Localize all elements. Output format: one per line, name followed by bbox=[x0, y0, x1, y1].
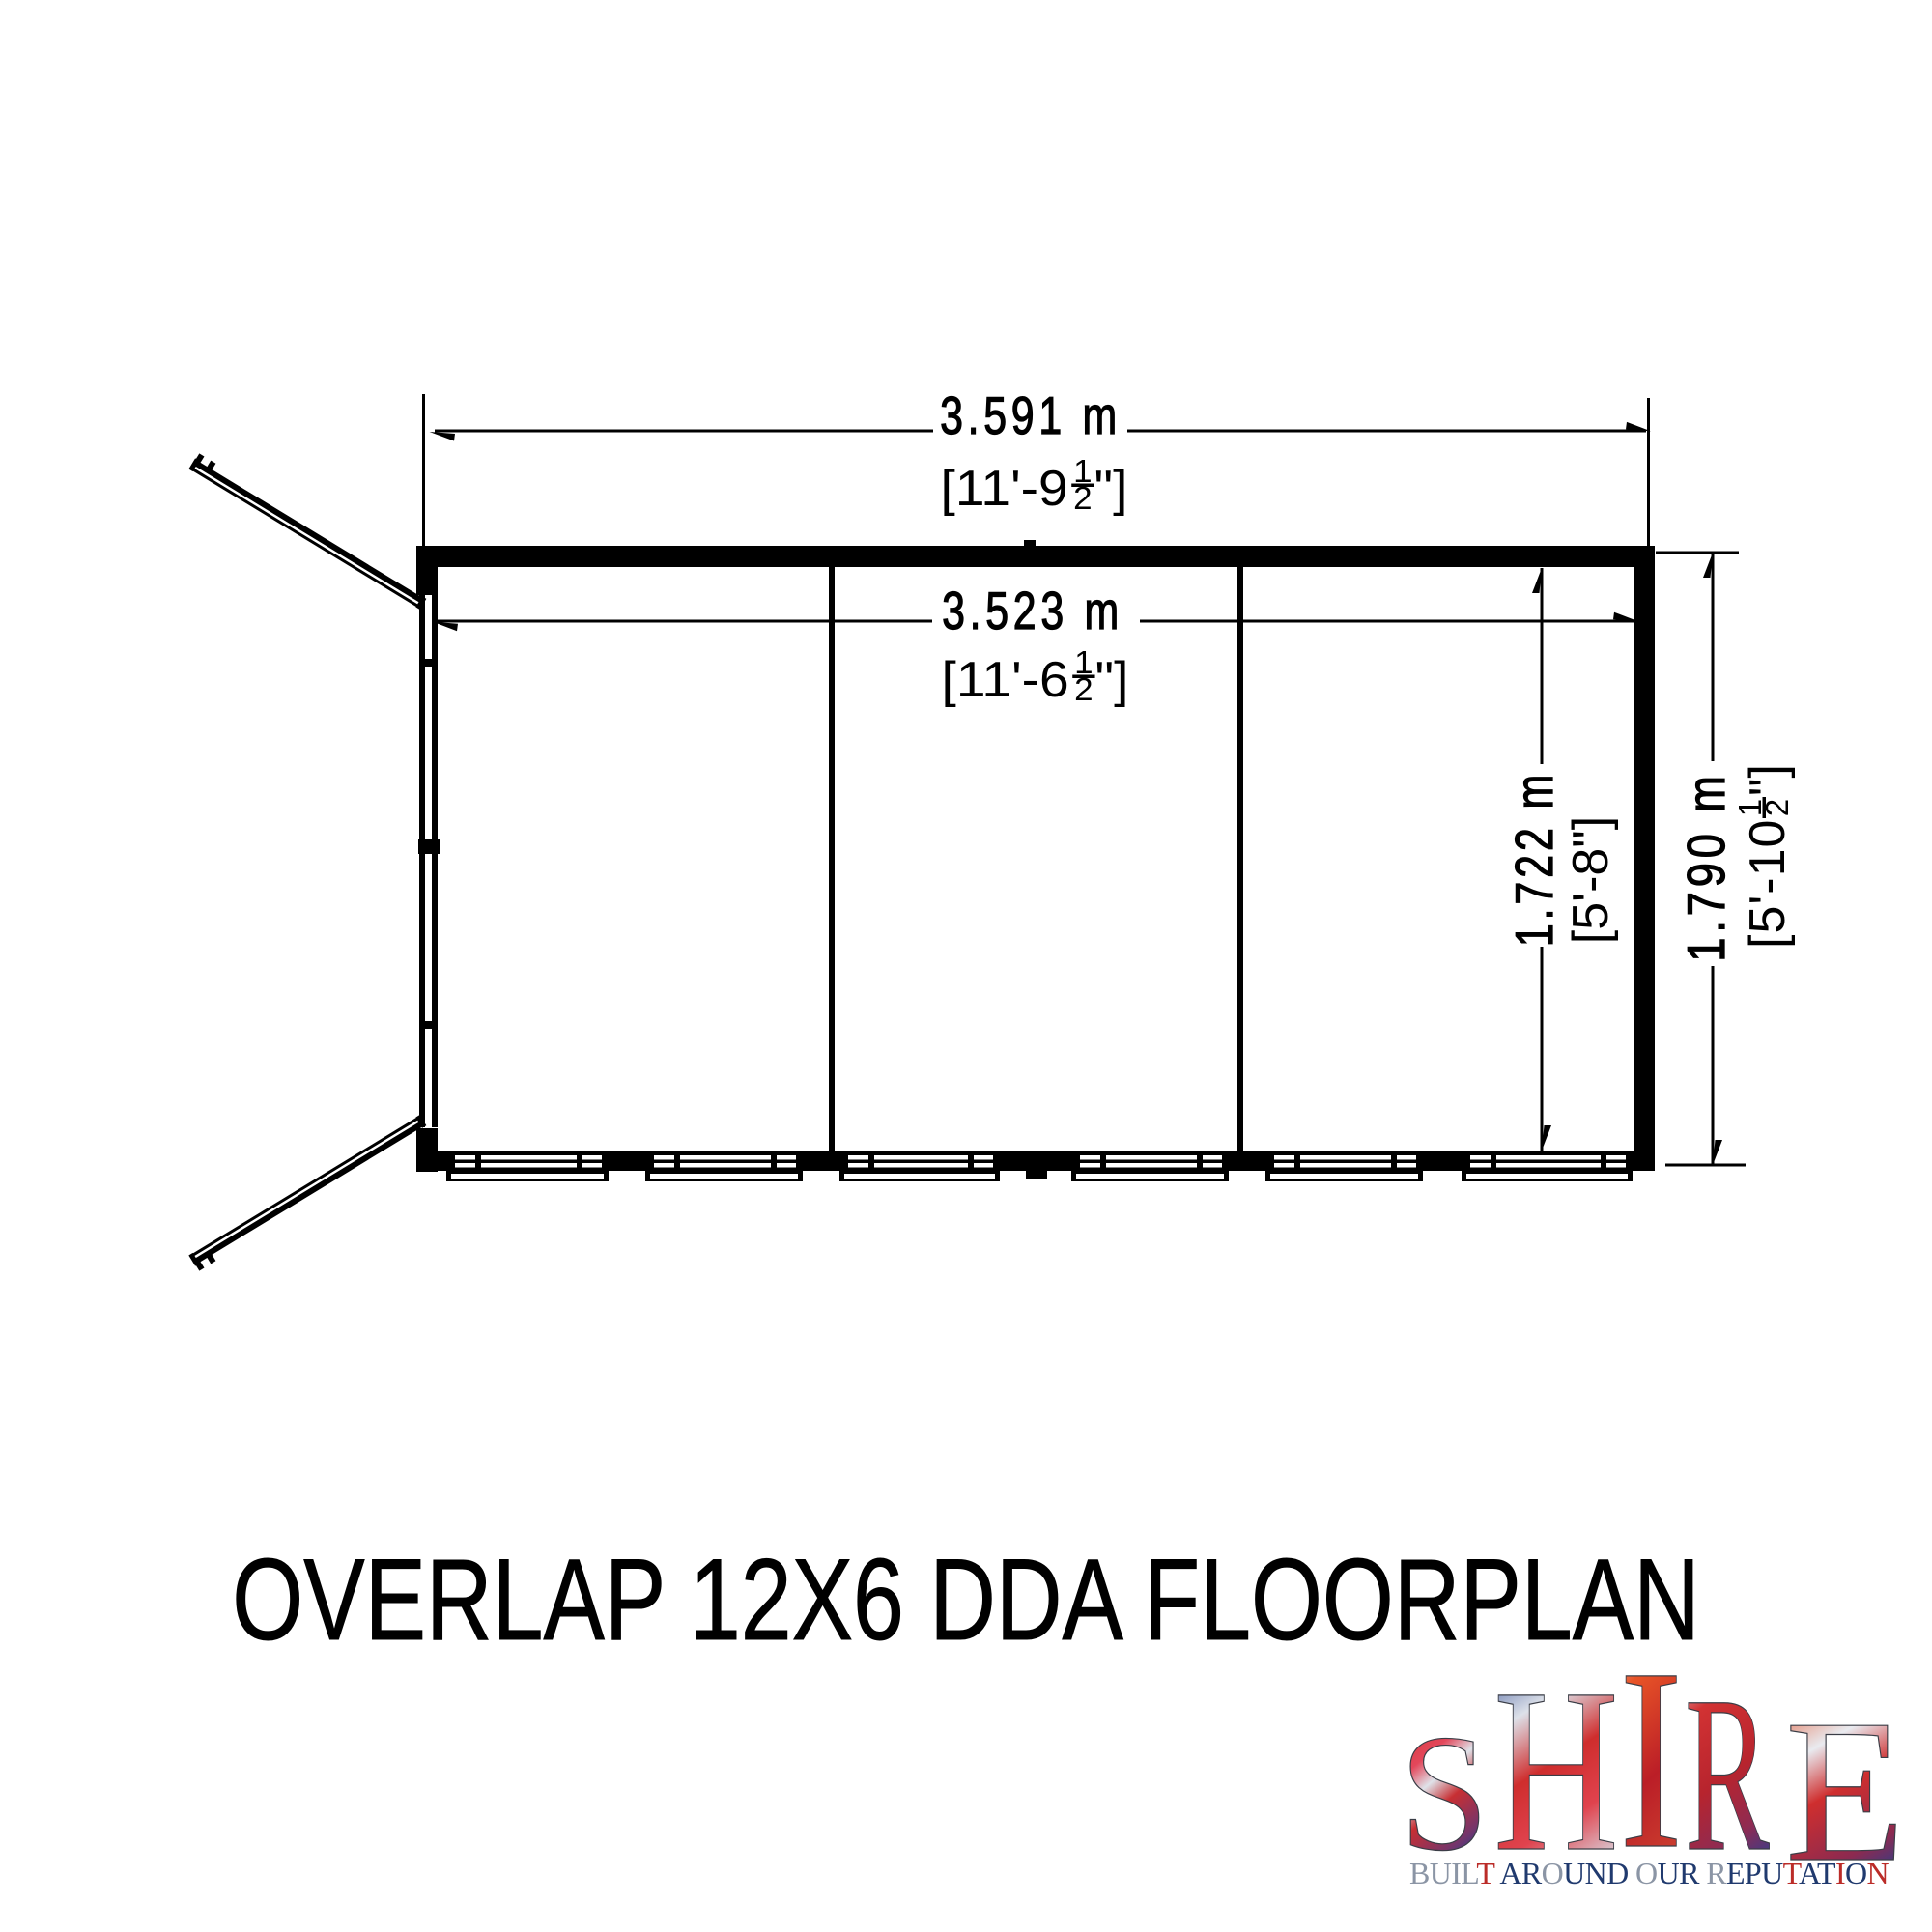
svg-text:1.790 m: 1.790 m bbox=[1676, 771, 1736, 961]
svg-text:[5'-10: [5'-10 bbox=[1740, 819, 1796, 949]
svg-text:1.722 m: 1.722 m bbox=[1505, 771, 1564, 947]
svg-text:"]: "] bbox=[1740, 764, 1796, 796]
svg-text:[11'-6: [11'-6 bbox=[942, 651, 1069, 707]
svg-text:OVERLAP 12X6 DDA FLOORPLAN: OVERLAP 12X6 DDA FLOORPLAN bbox=[232, 1534, 1699, 1663]
svg-text:2: 2 bbox=[1074, 672, 1093, 708]
svg-text:"]: "] bbox=[1095, 651, 1129, 707]
svg-text:[11'-9: [11'-9 bbox=[941, 460, 1068, 516]
svg-text:"]: "] bbox=[1094, 460, 1128, 516]
svg-text:2: 2 bbox=[1759, 799, 1795, 816]
svg-text:2: 2 bbox=[1073, 481, 1092, 517]
svg-text:3.591 m: 3.591 m bbox=[940, 386, 1122, 445]
svg-text:3.523 m: 3.523 m bbox=[942, 582, 1123, 640]
svg-text:[5'-8"]: [5'-8"] bbox=[1563, 816, 1619, 944]
svg-text:BUILT AROUND OUR REPUTATION: BUILT AROUND OUR REPUTATION bbox=[1409, 1856, 1889, 1890]
